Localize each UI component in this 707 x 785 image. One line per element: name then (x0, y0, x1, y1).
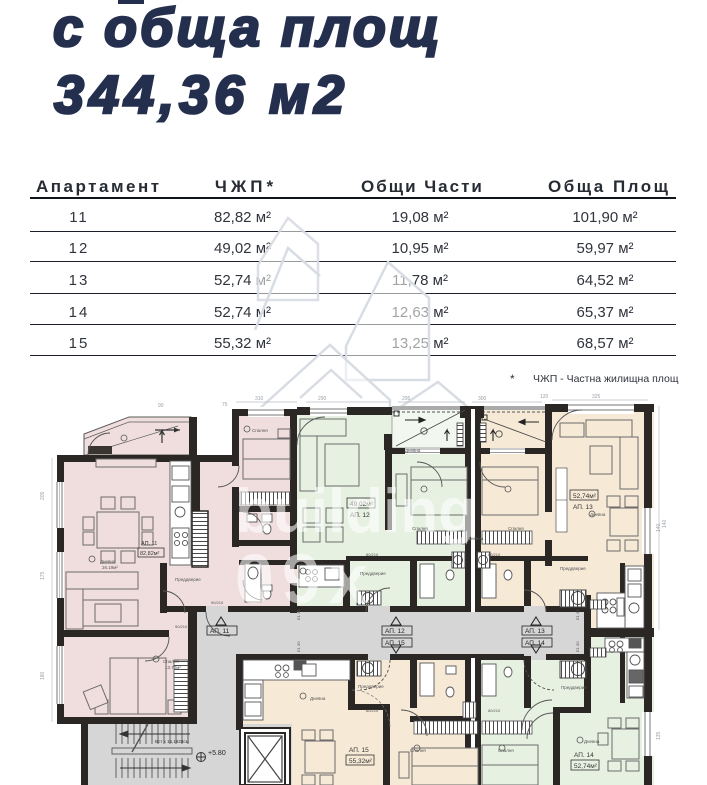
svg-text:Е1 30: Е1 30 (575, 641, 580, 652)
svg-text:82,82м²: 82,82м² (140, 551, 160, 557)
svg-text:90/210: 90/210 (175, 624, 188, 629)
svg-text:26.19м²: 26.19м² (102, 565, 118, 570)
svg-text:АП. 15: АП. 15 (385, 640, 405, 647)
svg-text:80/210: 80/210 (366, 552, 379, 557)
svg-text:АП. 15: АП. 15 (349, 747, 369, 754)
svg-text:Дневна: Дневна (590, 512, 606, 517)
svg-text:Спалня: Спалня (252, 428, 268, 433)
svg-text:Спалня: Спалня (410, 748, 426, 753)
svg-text:+5.80: +5.80 (208, 750, 226, 757)
svg-text:120: 120 (540, 394, 549, 400)
svg-text:205: 205 (40, 491, 46, 500)
svg-text:140: 140 (656, 523, 662, 532)
svg-text:290: 290 (318, 396, 327, 402)
svg-text:Е1 30: Е1 30 (575, 609, 580, 620)
svg-text:Преддверие: Преддверие (175, 577, 201, 582)
svg-text:180: 180 (40, 671, 46, 680)
svg-text:АП. 12: АП. 12 (385, 628, 405, 635)
svg-text:175: 175 (40, 571, 46, 580)
svg-text:Вст х 16,1928см: Вст х 16,1928см (155, 739, 189, 744)
svg-text:Спалня: Спалня (412, 526, 428, 531)
svg-text:Спалня: Спалня (498, 748, 514, 753)
svg-text:52,74м²: 52,74м² (573, 493, 597, 500)
svg-text:90: 90 (158, 403, 164, 409)
svg-text:АП. 13: АП. 13 (525, 628, 545, 635)
svg-text:Спалня: Спалня (508, 526, 524, 531)
svg-text:АП. 14: АП. 14 (525, 640, 545, 647)
svg-text:80/210: 80/210 (366, 708, 379, 713)
svg-text:Дневна: Дневна (310, 696, 326, 701)
svg-text:АП. 14: АП. 14 (574, 752, 594, 759)
svg-text:Дневна: Дневна (584, 739, 600, 744)
svg-text:Преддверие: Преддверие (560, 566, 586, 571)
svg-text:Дневна: Дневна (468, 536, 484, 541)
svg-text:300: 300 (478, 396, 487, 402)
svg-text:90/210: 90/210 (211, 600, 224, 605)
svg-text:building: building (235, 477, 476, 546)
svg-text:Спалня: Спалня (163, 659, 179, 664)
svg-text:Е1 30: Е1 30 (296, 641, 301, 652)
svg-text:Преддверие: Преддверие (360, 571, 386, 576)
svg-text:75: 75 (222, 402, 228, 408)
svg-text:АП. 11: АП. 11 (141, 541, 157, 547)
svg-text:АП. 13: АП. 13 (573, 504, 593, 511)
svg-text:Преддверие: Преддверие (358, 684, 384, 689)
svg-text:80/210: 80/210 (488, 708, 501, 713)
svg-text:52,74м²: 52,74м² (574, 763, 598, 770)
svg-text:325: 325 (592, 394, 601, 400)
svg-text:09x: 09x (235, 540, 376, 618)
svg-text:Дневна: Дневна (100, 559, 116, 564)
svg-text:Е1 30: Е1 30 (296, 609, 301, 620)
svg-text:135: 135 (656, 731, 662, 740)
svg-text:140: 140 (662, 519, 668, 528)
svg-text:АП. 11: АП. 11 (210, 628, 230, 635)
svg-text:55,32м²: 55,32м² (349, 758, 373, 765)
svg-text:13.70м²: 13.70м² (165, 665, 181, 670)
svg-text:Преддверие: Преддверие (561, 685, 587, 690)
svg-text:295: 295 (402, 396, 411, 402)
svg-text:80/210: 80/210 (488, 552, 501, 557)
svg-text:310: 310 (255, 396, 264, 402)
svg-text:Дневна: Дневна (405, 448, 421, 453)
